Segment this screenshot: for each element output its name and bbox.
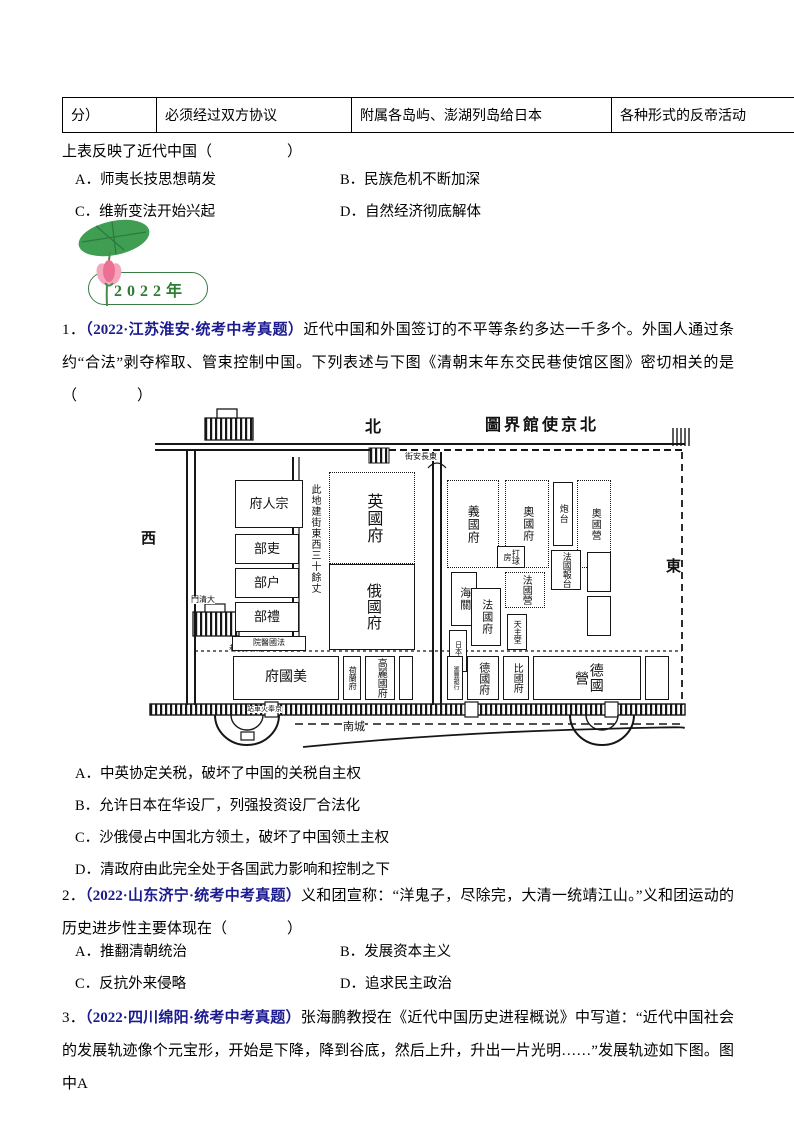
table-cell: 必须经过双方协议	[157, 98, 352, 133]
building-french-barracks: 法國營	[505, 572, 545, 608]
option-b: B．允许日本在华设厂，列强投资设厂合法化	[75, 794, 360, 815]
building-italian-legation: 義國府	[447, 480, 499, 568]
question-source: （2022·山东济宁·统考中考真题）	[85, 888, 301, 904]
option-b: B．发展资本主义	[340, 940, 451, 961]
option-a: A．中英协定关税，破坏了中国的关税自主权	[75, 762, 361, 783]
compass-east: 東	[666, 560, 681, 575]
small-building-box	[587, 552, 611, 592]
table-row: 分） 必须经过双方协议 附属各岛屿、澎湖列岛给日本 各种形式的反帝活动	[63, 98, 794, 133]
question-source: （2022·江苏淮安·统考中考真题）	[85, 322, 303, 338]
building-french-legation: 法國府	[471, 588, 501, 646]
table-cell: 各种形式的反帝活动	[612, 98, 794, 133]
lotus-decoration	[66, 216, 216, 308]
question-stem: 上表反映了近代中国（ ）	[62, 140, 302, 161]
map-title: 圖界館使京北	[485, 418, 599, 434]
map-note-street-width: 此地建街東西三十餘丈	[309, 484, 319, 652]
treaty-table-fragment: 分） 必须经过双方协议 附属各岛屿、澎湖列岛给日本 各种形式的反帝活动	[62, 97, 794, 133]
small-building-box	[645, 656, 669, 700]
street-dongchangan: 街安長東	[405, 453, 437, 461]
building-korean-legation: 高麗國府	[365, 656, 395, 700]
lotus-flower	[94, 260, 124, 287]
small-building-box	[587, 596, 611, 636]
table-cell: 分）	[63, 98, 157, 133]
question-3: 3．（2022·四川绵阳·统考中考真题）张海鹏教授在《近代中国历史进程概说》中写…	[62, 1002, 734, 1101]
building-german-barracks: 德國營	[533, 656, 641, 700]
building-battery: 炮台	[553, 482, 573, 546]
option-b: B．民族危机不断加深	[340, 168, 480, 189]
question-number: 3．	[62, 1010, 85, 1026]
building-belgian-legation: 比國府	[503, 656, 529, 700]
building-board-li: 部吏	[235, 534, 299, 564]
building-zongrenfu: 府人宗	[235, 480, 303, 528]
option-a: A．推翻清朝统治	[75, 940, 187, 961]
building-french-telegraph: 法國報台	[551, 550, 581, 590]
question-number: 2．	[62, 888, 85, 904]
option-c: C．反抗外来侵略	[75, 972, 186, 993]
building-catholic-church: 天主堂	[507, 614, 527, 650]
question-2: 2．（2022·山东济宁·统考中考真题）义和团宣称：“洋鬼子，尽除完，大清一统靖…	[62, 880, 734, 946]
question-number: 1．	[62, 322, 85, 338]
question-1: 1．（2022·江苏淮安·统考中考真题）近代中国和外国签订的不平等条约多达一千多…	[62, 314, 734, 413]
daqingmen-label: 門清大	[191, 596, 215, 604]
option-c: C．沙俄侵占中国北方领土，破坏了中国领土主权	[75, 826, 389, 847]
option-d: D．追求民主政治	[340, 972, 452, 993]
table-cell: 附属各岛屿、澎湖列岛给日本	[352, 98, 612, 133]
exam-page: { "colors": { "source_blue": "#1b1b8f", …	[0, 0, 794, 1123]
building-board-rites: 部禮	[235, 602, 299, 632]
option-d: D．自然经济彻底解体	[340, 200, 481, 221]
legation-quarter-map: 圖界館使京北 北 西 東 南城 街安長東 巷民交東 站車火奉京 門清大 府人宗 …	[135, 402, 695, 752]
building-hsbc: 滙豐銀行	[447, 656, 463, 700]
building-dutch-legation: 荷蘭府	[343, 656, 361, 700]
option-d: D．清政府由此完全处于各国武力影响和控制之下	[75, 858, 390, 879]
question-source: （2022·四川绵阳·统考中考真题）	[85, 1010, 301, 1026]
option-a: A．师夷长技思想萌发	[75, 168, 216, 189]
compass-north: 北	[365, 420, 381, 436]
building-german-legation: 德國府	[467, 656, 499, 700]
building-french-hospital: 院醫國法	[232, 636, 306, 651]
building-american-legation: 府國美	[233, 656, 339, 700]
building-russian-legation: 俄國府	[329, 564, 415, 650]
railway-station-label: 站車火奉京	[247, 706, 282, 713]
building-ball-house: 打球房	[497, 546, 525, 568]
building-board-hu: 部户	[235, 568, 299, 598]
south-wall-label: 南城	[343, 722, 365, 733]
compass-west: 西	[141, 532, 156, 547]
building-british-legation: 英國府	[329, 472, 415, 564]
small-building-box	[399, 656, 413, 700]
